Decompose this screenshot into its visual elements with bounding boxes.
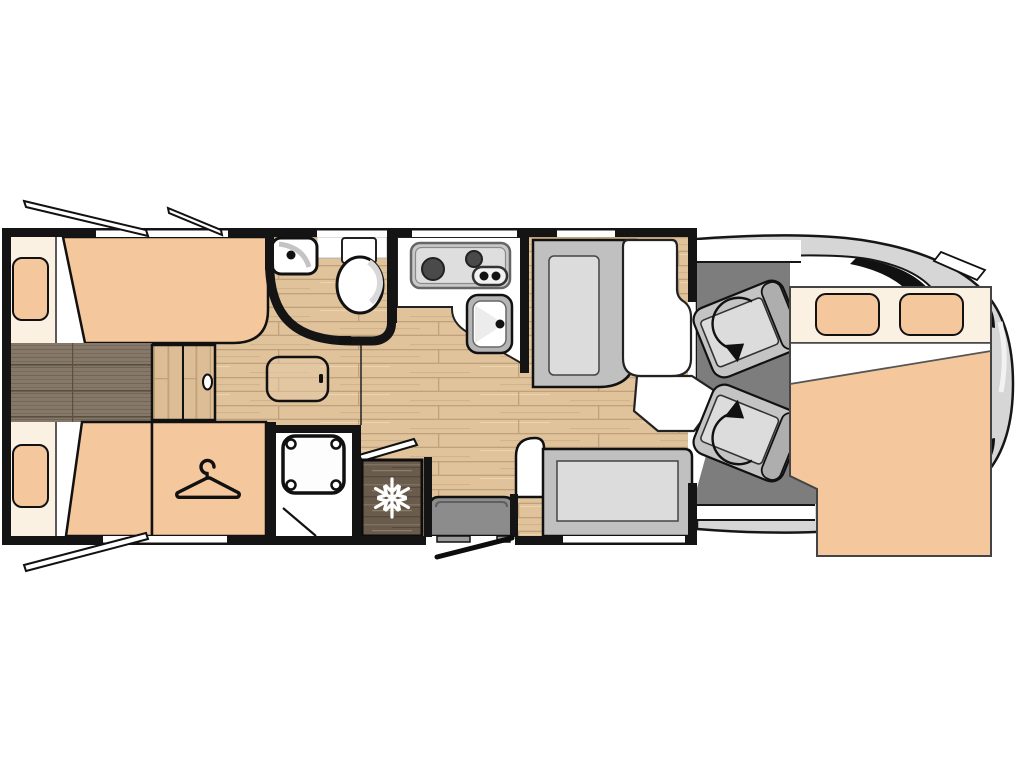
single-bed-top [63, 237, 268, 343]
bed-pillow-right [900, 294, 963, 335]
faucet-dot [496, 320, 505, 329]
drawer-handle [203, 375, 212, 390]
sill-bottom [697, 505, 815, 520]
entry-step [430, 497, 513, 536]
faucet-dot [287, 251, 296, 260]
pillow-bottom [13, 445, 48, 507]
entrance [430, 497, 513, 536]
bathroom-door-handle [339, 336, 352, 344]
side-table [267, 357, 328, 401]
sill-top [697, 240, 801, 262]
pillow-top [13, 258, 48, 320]
two-burner-hob [411, 243, 510, 288]
step-tab [437, 536, 470, 542]
hob-controls [473, 267, 507, 285]
bed-pillow-left [816, 294, 879, 335]
drop-down-bed [790, 287, 991, 556]
kitchen-sink [467, 295, 512, 353]
sofa-bench [516, 438, 692, 536]
floor-plan-canvas: Motorhome floor plan, top view, cab at r… [0, 0, 1024, 768]
wardrobe [152, 422, 266, 536]
toilet [337, 238, 383, 313]
shower-room [276, 430, 352, 536]
dinette-seat [533, 240, 636, 387]
corner-basin [272, 238, 317, 274]
center-walkway [11, 343, 152, 422]
armrest [516, 438, 544, 497]
table-handle [319, 374, 323, 383]
center-step-chest [152, 345, 215, 420]
single-bed-bottom [66, 422, 152, 536]
bed-duvet [790, 351, 991, 556]
